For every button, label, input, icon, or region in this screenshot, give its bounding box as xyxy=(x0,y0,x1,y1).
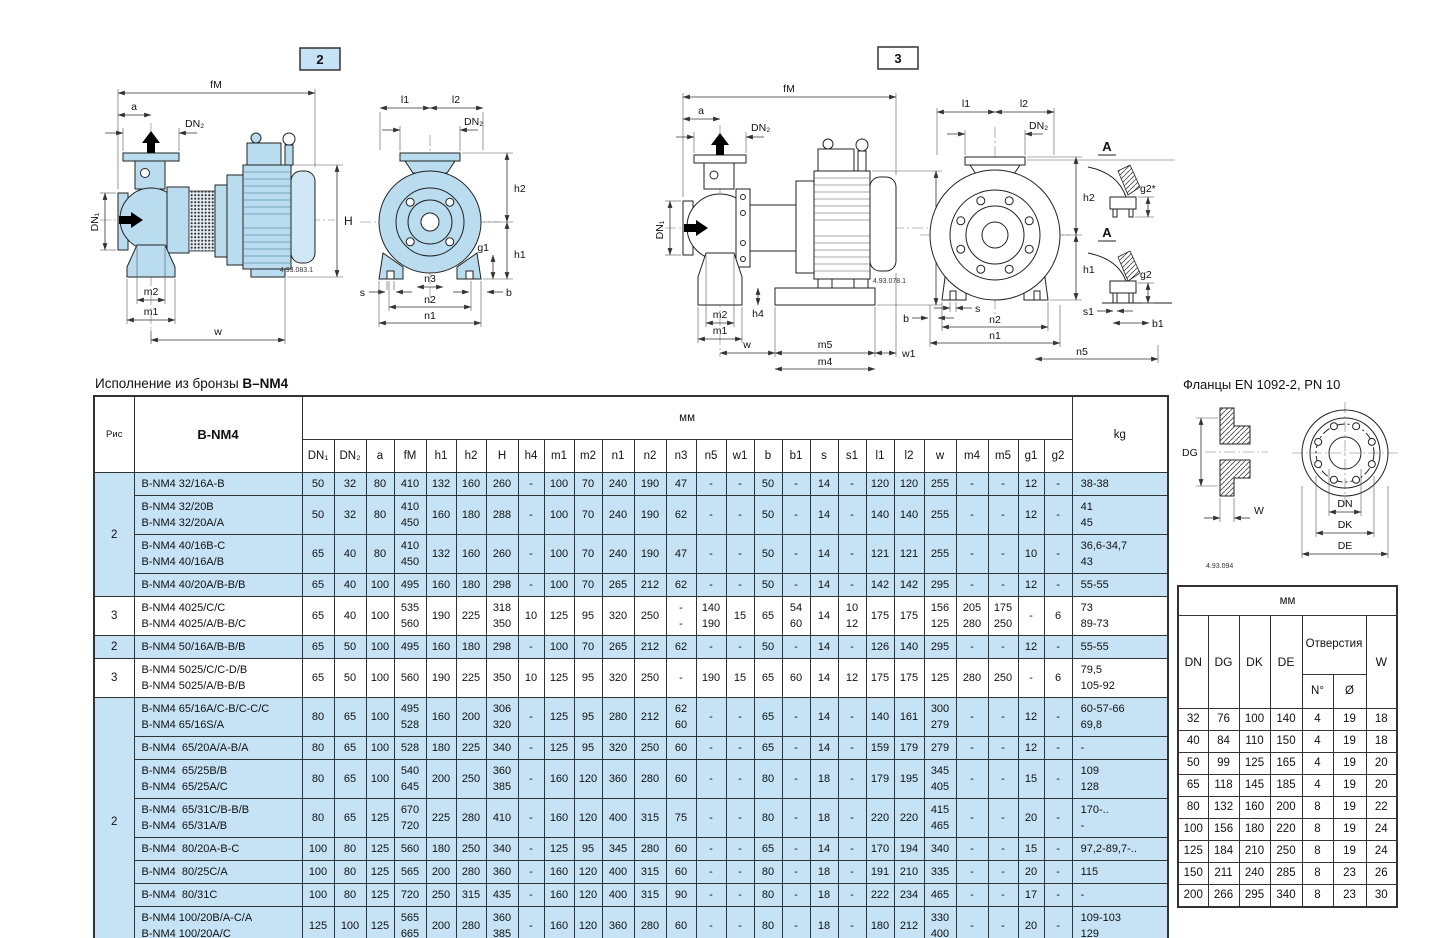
dim-cell: 18 xyxy=(810,907,838,938)
col-header-dim: g1 xyxy=(1018,440,1044,473)
dim-cell: 80 xyxy=(302,737,334,760)
model-cell: B-NM4 65/25B/B B-NM4 65/25A/C xyxy=(134,760,302,799)
dim-cell: 345 405 xyxy=(924,760,956,799)
flange-cell: 156 xyxy=(1208,819,1239,841)
dim-cell: - xyxy=(956,861,988,884)
dim-label-dn2-fig3: DN₂ xyxy=(751,122,770,134)
dim-cell: 140 xyxy=(866,698,894,737)
figure-2-number: 2 xyxy=(316,52,323,67)
dim-cell: 175 xyxy=(894,597,924,636)
flange-cell: 4 xyxy=(1302,709,1333,731)
dim-cell: - xyxy=(518,760,544,799)
dim-cell: - xyxy=(518,861,544,884)
flange-section-title: Фланцы EN 1092-2, PN 10 xyxy=(1183,377,1340,392)
flange-cell: 150 xyxy=(1178,863,1208,885)
dim-cell: 250 xyxy=(426,884,456,907)
flange-cell: 250 xyxy=(1270,841,1302,863)
dim-cell: - xyxy=(956,496,988,535)
flange-row: 15021124028582326 xyxy=(1178,863,1397,885)
dim-cell: 80 xyxy=(302,760,334,799)
dim-cell: - xyxy=(726,760,754,799)
dim-cell: - xyxy=(1044,799,1072,838)
dim-cell: 191 xyxy=(866,861,894,884)
dim-cell: 60 xyxy=(666,737,696,760)
dim-cell: 180 xyxy=(426,737,456,760)
dim-cell: - xyxy=(956,574,988,597)
dim-cell: - xyxy=(956,760,988,799)
flange-cell: 84 xyxy=(1208,731,1239,753)
drawing-number: 4.93.083.1 xyxy=(280,267,313,274)
dim-cell: 95 xyxy=(574,737,602,760)
dim-cell: 10 12 xyxy=(838,597,866,636)
flange-cell: 140 xyxy=(1270,709,1302,731)
dim-cell: 120 xyxy=(574,884,602,907)
dim-label-w-flange: W xyxy=(1254,505,1264,517)
dim-cell: - xyxy=(956,737,988,760)
dim-cell: 180 xyxy=(456,496,486,535)
dim-cell: 280 xyxy=(634,838,666,861)
model-cell: B-NM4 80/20A-B-C xyxy=(134,838,302,861)
dim-cell: 160 xyxy=(544,884,574,907)
dim-cell: 260 xyxy=(486,535,518,574)
kg-cell: 79,5 105-92 xyxy=(1072,659,1168,698)
detail-a-label: A xyxy=(1102,139,1112,154)
dim-cell: - xyxy=(838,760,866,799)
dim-cell: 100 xyxy=(302,884,334,907)
col-header-dim: n5 xyxy=(696,440,726,473)
dim-label-h1: h1 xyxy=(514,249,526,261)
table-row: B-NM4 32/20B B-NM4 32/20A/A503280410 450… xyxy=(94,496,1168,535)
dim-cell: 320 xyxy=(602,659,634,698)
col-header-dim: b xyxy=(754,440,782,473)
flange-cell: 8 xyxy=(1302,863,1333,885)
flange-col-w: W xyxy=(1366,616,1397,709)
dim-label-dn2: DN₂ xyxy=(185,118,204,130)
dim-cell: 190 xyxy=(634,496,666,535)
flange-cell: 24 xyxy=(1366,841,1397,863)
dim-cell: 125 xyxy=(544,737,574,760)
dim-cell: 100 xyxy=(302,861,334,884)
dim-cell: 300 279 xyxy=(924,698,956,737)
dim-cell: - xyxy=(838,799,866,838)
dim-cell: - xyxy=(1018,659,1044,698)
dim-cell: 14 xyxy=(810,636,838,659)
dim-cell: 80 xyxy=(754,884,782,907)
flange-cell: 211 xyxy=(1208,863,1239,885)
dim-label-s-fig3: s xyxy=(975,303,980,315)
dim-cell: 50 xyxy=(302,473,334,496)
dim-cell: 225 xyxy=(426,799,456,838)
section-title-model: B–NM4 xyxy=(242,376,288,391)
dim-cell: 50 xyxy=(334,659,366,698)
dim-cell: - xyxy=(838,907,866,938)
col-header-dim: s1 xyxy=(838,440,866,473)
dim-cell: - xyxy=(838,535,866,574)
dim-cell: 14 xyxy=(810,574,838,597)
dim-cell: 15 xyxy=(1018,760,1044,799)
dim-cell: 495 528 xyxy=(394,698,426,737)
dim-cell: 565 xyxy=(394,861,426,884)
dim-cell: - xyxy=(696,907,726,938)
dim-cell: 225 xyxy=(456,597,486,636)
dim-label-dn1: DN₁ xyxy=(89,212,101,231)
dim-cell: 100 xyxy=(366,698,394,737)
flange-cell: 100 xyxy=(1178,819,1208,841)
dim-cell: 400 xyxy=(602,799,634,838)
dim-cell: 160 xyxy=(456,535,486,574)
dim-label-g1: g1 xyxy=(477,242,489,254)
dim-cell: - xyxy=(518,496,544,535)
flange-cell: 23 xyxy=(1333,863,1366,885)
dim-cell: 50 xyxy=(754,535,782,574)
flange-cell: 20 xyxy=(1366,775,1397,797)
dim-cell: 125 xyxy=(366,838,394,861)
dim-cell: 100 xyxy=(366,737,394,760)
col-header-dim: DN₁ xyxy=(302,440,334,473)
dim-cell: 670 720 xyxy=(394,799,426,838)
dim-cell: - xyxy=(956,884,988,907)
kg-cell: 41 45 xyxy=(1072,496,1168,535)
dim-cell: 140 190 xyxy=(696,597,726,636)
dim-cell: 100 xyxy=(544,496,574,535)
dim-cell: 250 xyxy=(456,760,486,799)
dim-cell: 65 xyxy=(334,698,366,737)
dim-cell: 335 xyxy=(924,861,956,884)
dim-cell: - xyxy=(666,659,696,698)
dim-cell: 465 xyxy=(924,884,956,907)
flange-col-dn: DN xyxy=(1178,616,1208,709)
model-cell: B-NM4 65/31C/B-B/B B-NM4 65/31A/B xyxy=(134,799,302,838)
flange-cell: 184 xyxy=(1208,841,1239,863)
dim-cell: - xyxy=(696,737,726,760)
dim-cell: 240 xyxy=(602,535,634,574)
dim-cell: - xyxy=(1044,737,1072,760)
dim-cell: 54 60 xyxy=(782,597,810,636)
dim-cell: 260 xyxy=(486,473,518,496)
col-header-dim: h4 xyxy=(518,440,544,473)
drawing-number-fig3: 4.93.078.1 xyxy=(873,278,906,285)
flange-cell: 200 xyxy=(1178,885,1208,908)
col-header-dim: m4 xyxy=(956,440,988,473)
dim-cell: 17 xyxy=(1018,884,1044,907)
dim-label-g2star: g2* xyxy=(1140,183,1156,195)
dim-cell: 495 xyxy=(394,636,426,659)
dim-cell: - xyxy=(726,535,754,574)
dim-cell: 80 xyxy=(302,799,334,838)
section-title-text: Исполнение из бронзы xyxy=(95,376,242,391)
dim-label-n2: n2 xyxy=(424,294,436,306)
col-header-dim: m2 xyxy=(574,440,602,473)
dim-cell: - xyxy=(782,760,810,799)
dim-label-fm-fig3: fM xyxy=(783,83,795,95)
dim-cell: 180 xyxy=(456,636,486,659)
model-cell: B-NM4 50/16A/B-B/B xyxy=(134,636,302,659)
dim-cell: - xyxy=(726,636,754,659)
unit-header-mm: мм xyxy=(302,396,1072,440)
col-header-dim: a xyxy=(366,440,394,473)
dim-cell: 65 xyxy=(754,698,782,737)
dim-cell: 132 xyxy=(426,473,456,496)
dim-cell: 14 xyxy=(810,659,838,698)
dim-cell: - xyxy=(726,799,754,838)
dim-cell: - xyxy=(782,473,810,496)
dim-cell: - xyxy=(726,574,754,597)
dim-cell: 100 xyxy=(366,760,394,799)
dim-label-dn1-fig3: DN₁ xyxy=(654,220,666,239)
dim-cell: - xyxy=(988,907,1018,938)
dim-cell: 195 xyxy=(894,760,924,799)
dim-cell: 65 xyxy=(302,597,334,636)
dim-cell: 125 xyxy=(366,861,394,884)
dim-cell: 47 xyxy=(666,535,696,574)
dim-cell: 40 xyxy=(334,597,366,636)
flange-row: 20026629534082330 xyxy=(1178,885,1397,908)
model-cell: B-NM4 40/20A/B-B/B xyxy=(134,574,302,597)
dim-cell: 18 xyxy=(810,861,838,884)
dim-cell: 495 xyxy=(394,574,426,597)
dim-cell: 12 xyxy=(838,659,866,698)
dim-cell: 255 xyxy=(924,535,956,574)
dim-cell: 32 xyxy=(334,496,366,535)
flange-cell: 8 xyxy=(1302,797,1333,819)
dim-label-h2: h2 xyxy=(514,183,526,195)
flange-cell: 19 xyxy=(1333,775,1366,797)
dim-cell: - xyxy=(956,473,988,496)
dim-cell: 20 xyxy=(1018,907,1044,938)
dim-cell: 75 xyxy=(666,799,696,838)
dim-cell: 14 xyxy=(810,496,838,535)
table-row: B-NM4 65/31C/B-B/B B-NM4 65/31A/B8065125… xyxy=(94,799,1168,838)
dim-cell: 212 xyxy=(634,574,666,597)
coupling-guard xyxy=(189,191,215,251)
dim-cell: 410 450 xyxy=(394,496,426,535)
fig-ref-cell: 2 xyxy=(94,698,134,938)
dim-cell: 125 xyxy=(544,838,574,861)
col-header-dim: s xyxy=(810,440,838,473)
dim-cell: 47 xyxy=(666,473,696,496)
dim-cell: 160 xyxy=(544,861,574,884)
dim-cell: 535 560 xyxy=(394,597,426,636)
kg-cell: 60-57-66 69,8 xyxy=(1072,698,1168,737)
col-header-dim: m5 xyxy=(988,440,1018,473)
dim-cell: 255 xyxy=(924,496,956,535)
dim-label-m1-fig3: m1 xyxy=(713,325,728,337)
dim-cell: - xyxy=(1044,838,1072,861)
flange-cell: 19 xyxy=(1333,841,1366,863)
dim-cell: 100 xyxy=(302,838,334,861)
flange-cell: 8 xyxy=(1302,841,1333,863)
dim-cell: - xyxy=(956,636,988,659)
flange-row: 408411015041918 xyxy=(1178,731,1397,753)
dim-cell: 120 xyxy=(866,473,894,496)
flange-cell: 295 xyxy=(1239,885,1270,908)
dim-cell: 190 xyxy=(634,535,666,574)
dim-cell: 565 665 xyxy=(394,907,426,938)
flange-unit-header: мм xyxy=(1178,586,1397,616)
dim-cell: 340 xyxy=(924,838,956,861)
dim-cell: 65 xyxy=(302,659,334,698)
dim-label-l2: l2 xyxy=(452,94,460,106)
dim-cell: 18 xyxy=(810,884,838,907)
dim-cell: 126 xyxy=(866,636,894,659)
col-header-dim: H xyxy=(486,440,518,473)
dim-cell: - xyxy=(838,861,866,884)
dim-cell: - xyxy=(838,473,866,496)
dim-cell: 179 xyxy=(894,737,924,760)
dim-cell: 125 xyxy=(366,884,394,907)
dim-cell: 80 xyxy=(366,473,394,496)
flange-cell: 4 xyxy=(1302,775,1333,797)
table-row: B-NM4 80/25C/A10080125565200280360-16012… xyxy=(94,861,1168,884)
dim-cell: 80 xyxy=(754,760,782,799)
col-header-model: B-NM4 xyxy=(134,396,302,473)
dim-cell: - xyxy=(696,861,726,884)
dim-cell: - xyxy=(988,861,1018,884)
dim-cell: 32 xyxy=(334,473,366,496)
dim-cell: - xyxy=(988,535,1018,574)
flange-row: 6511814518541920 xyxy=(1178,775,1397,797)
dim-cell: - xyxy=(782,838,810,861)
dim-cell: 410 xyxy=(486,799,518,838)
kg-cell: 36,6-34,7 43 xyxy=(1072,535,1168,574)
figure-3-drawing: 3 xyxy=(650,15,1195,380)
dim-cell: 410 450 xyxy=(394,535,426,574)
table-row: B-NM4 65/25B/B B-NM4 65/25A/C8065100540 … xyxy=(94,760,1168,799)
dim-cell: 62 xyxy=(666,574,696,597)
col-header-kg: kg xyxy=(1072,396,1168,473)
col-header-dim: h2 xyxy=(456,440,486,473)
eyebolt-icon xyxy=(283,133,295,145)
col-header-dim: DN₂ xyxy=(334,440,366,473)
dim-label-dn: DN xyxy=(1337,498,1352,510)
dim-label-h1-fig3: h1 xyxy=(1083,264,1095,276)
flange-col-holes-n: N° xyxy=(1302,674,1333,708)
dim-cell: 340 xyxy=(486,838,518,861)
dim-cell: - xyxy=(696,636,726,659)
col-header-dim: fM xyxy=(394,440,426,473)
dim-cell: - xyxy=(726,737,754,760)
dim-cell: 6 xyxy=(1044,597,1072,636)
pump-front-view-fig3 xyxy=(920,127,1175,315)
dim-cell: 50 xyxy=(334,636,366,659)
dim-cell: 14 xyxy=(810,838,838,861)
dim-cell: 220 xyxy=(894,799,924,838)
flange-cell: 19 xyxy=(1333,753,1366,775)
flange-cell: 165 xyxy=(1270,753,1302,775)
dim-label-s: s xyxy=(360,287,365,299)
dim-cell: 100 xyxy=(366,597,394,636)
flange-cell: 19 xyxy=(1333,819,1366,841)
dim-cell: 320 xyxy=(602,597,634,636)
dim-cell: 12 xyxy=(1018,737,1044,760)
dim-cell: 80 xyxy=(754,907,782,938)
flange-cell: 40 xyxy=(1178,731,1208,753)
flange-cell: 18 xyxy=(1366,731,1397,753)
dim-cell: 190 xyxy=(426,659,456,698)
model-cell: B-NM4 32/16A-B xyxy=(134,473,302,496)
col-header-dim: n2 xyxy=(634,440,666,473)
dim-cell: - xyxy=(696,496,726,535)
dim-cell: - xyxy=(782,861,810,884)
table-row: B-NM4 40/20A/B-B/B6540100495160180298-10… xyxy=(94,574,1168,597)
dim-cell: 250 xyxy=(634,597,666,636)
col-header-dim: n3 xyxy=(666,440,696,473)
dim-cell: - xyxy=(518,799,544,838)
flange-cell: 110 xyxy=(1239,731,1270,753)
dim-cell: 180 xyxy=(426,838,456,861)
flange-col-holes: Отверстия xyxy=(1302,616,1366,675)
dim-cell: - xyxy=(726,861,754,884)
dim-cell: 280 xyxy=(602,698,634,737)
dim-cell: 295 xyxy=(924,574,956,597)
dim-label-n1-fig3: n1 xyxy=(989,330,1001,342)
dim-label-n1: n1 xyxy=(424,310,436,322)
dim-cell: 50 xyxy=(302,496,334,535)
dim-cell: 10 xyxy=(518,597,544,636)
dim-cell: 100 xyxy=(366,659,394,698)
flange-cell: 145 xyxy=(1239,775,1270,797)
col-header-dim: l1 xyxy=(866,440,894,473)
dim-cell: 160 xyxy=(544,760,574,799)
dim-cell: - xyxy=(782,496,810,535)
dim-label-a: a xyxy=(131,101,137,113)
dim-label-m4: m4 xyxy=(818,356,833,368)
dim-cell: 720 xyxy=(394,884,426,907)
flange-cell: 19 xyxy=(1333,797,1366,819)
dim-label-dg: DG xyxy=(1182,447,1198,459)
dim-cell: 360 385 xyxy=(486,907,518,938)
dim-cell: 65 xyxy=(754,659,782,698)
flange-cell: 180 xyxy=(1239,819,1270,841)
dim-cell: 200 xyxy=(426,861,456,884)
model-cell: B-NM4 4025/C/C B-NM4 4025/A/B-B/C xyxy=(134,597,302,636)
dim-cell: - xyxy=(1044,907,1072,938)
dim-cell: 315 xyxy=(634,799,666,838)
dim-cell: 250 xyxy=(634,659,666,698)
dim-cell: - xyxy=(518,636,544,659)
dim-label-dn2-front: DN₂ xyxy=(464,116,483,128)
flange-row: 327610014041918 xyxy=(1178,709,1397,731)
dim-cell: - xyxy=(782,698,810,737)
flange-row: 8013216020081922 xyxy=(1178,797,1397,819)
table-row: B-NM4 65/20A/A-B/A8065100528180225340-12… xyxy=(94,737,1168,760)
dim-label-m2: m2 xyxy=(144,286,159,298)
flange-cell: 8 xyxy=(1302,885,1333,908)
model-cell: B-NM4 32/20B B-NM4 32/20A/A xyxy=(134,496,302,535)
dim-label-n3: n3 xyxy=(424,273,436,285)
dim-cell: - xyxy=(838,737,866,760)
dim-cell: - xyxy=(518,473,544,496)
dim-cell: 142 xyxy=(866,574,894,597)
dim-cell: 560 xyxy=(394,838,426,861)
flange-cell: 65 xyxy=(1178,775,1208,797)
col-header-dim: m1 xyxy=(544,440,574,473)
dim-cell: 65 xyxy=(754,597,782,636)
dim-label-n5: n5 xyxy=(1076,346,1088,358)
dim-cell: - xyxy=(518,884,544,907)
dim-label-s1: s1 xyxy=(1083,306,1094,318)
dim-cell: 159 xyxy=(866,737,894,760)
dim-cell: 180 xyxy=(456,574,486,597)
dim-cell: 80 xyxy=(754,861,782,884)
flange-col-holes-d: Ø xyxy=(1333,674,1366,708)
dim-cell: 100 xyxy=(366,636,394,659)
flange-cell: 26 xyxy=(1366,863,1397,885)
dim-cell: 160 xyxy=(426,698,456,737)
dim-cell: 95 xyxy=(574,659,602,698)
table-row: B-NM4 40/16B-C B-NM4 40/16A/B654080410 4… xyxy=(94,535,1168,574)
dim-cell: 121 xyxy=(866,535,894,574)
